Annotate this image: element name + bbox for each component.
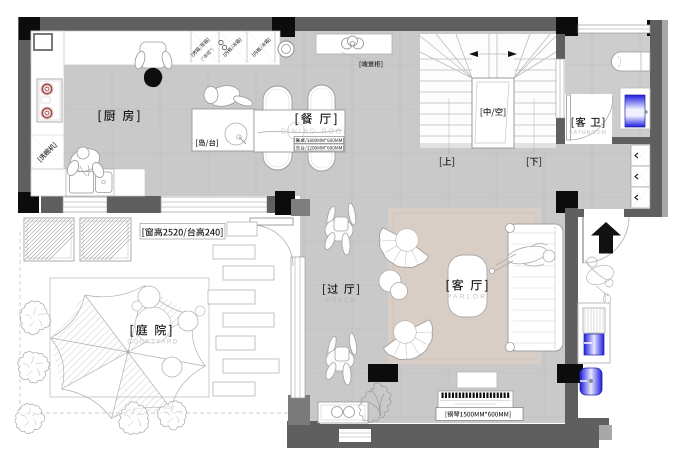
svg-text:PORCH: PORCH bbox=[326, 297, 356, 304]
svg-text:PARLOR: PARLOR bbox=[447, 294, 488, 301]
svg-text:BATHROOM: BATHROOM bbox=[569, 130, 607, 136]
svg-text:DINING ROOM: DINING ROOM bbox=[281, 129, 351, 136]
svg-text:KITCHEN: KITCHEN bbox=[98, 125, 142, 132]
svg-text:COURTYARD: COURTYARD bbox=[127, 339, 178, 346]
